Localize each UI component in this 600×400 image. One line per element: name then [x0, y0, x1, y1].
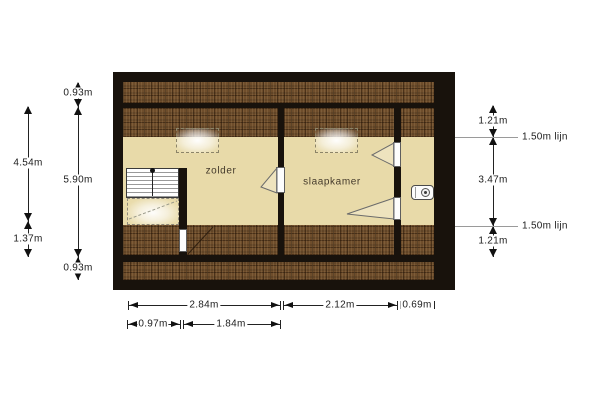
dim-arrow	[24, 213, 32, 221]
dim-arrow	[74, 249, 82, 257]
dim-tick	[128, 301, 129, 310]
door-swing-right-top	[372, 143, 394, 166]
dim-tick	[280, 301, 281, 310]
room-label-zolder: zolder	[206, 166, 237, 177]
plan-linework	[0, 0, 600, 400]
dim-value: 1.21m	[476, 116, 509, 127]
dim-value: 5.90m	[61, 175, 94, 186]
dim-value: 2.12m	[323, 300, 356, 311]
height-line-top	[455, 137, 518, 138]
dim-arrow	[74, 99, 82, 107]
dim-value: 1.37m	[11, 234, 44, 245]
dim-arrow	[185, 321, 193, 327]
door-swing-zolder	[261, 168, 277, 193]
dim-tick	[127, 320, 128, 329]
dim-arrow	[489, 137, 497, 145]
dim-arrow	[74, 107, 82, 115]
dim-arrow	[489, 105, 497, 113]
dim-arrow	[171, 321, 179, 327]
dim-arrow	[24, 221, 32, 229]
floorplan-canvas: zolder slaapkamer 0.93m 5.90m 0.93m 4.54…	[0, 0, 600, 400]
roof-fold-line	[188, 227, 213, 254]
dim-arrow	[24, 106, 32, 114]
dim-arrow	[489, 218, 497, 226]
dim-tick	[183, 320, 184, 329]
door-swing-right-bottom	[347, 198, 394, 219]
dim-arrow	[285, 302, 293, 308]
dim-value: 1.21m	[476, 236, 509, 247]
dim-arrow	[271, 321, 279, 327]
dim-arrow	[489, 226, 497, 234]
dim-value: 3.47m	[476, 175, 509, 186]
dim-tick	[180, 320, 181, 329]
dim-value: 0.93m	[61, 88, 94, 99]
height-line-label: 1.50m lijn	[522, 132, 568, 143]
room-label-slaapkamer: slaapkamer	[303, 177, 361, 188]
dim-arrow	[129, 321, 137, 327]
height-line-bottom	[455, 226, 518, 227]
dim-arrow	[271, 302, 279, 308]
dim-value: 0.97m	[137, 319, 168, 330]
dim-tick	[397, 301, 398, 310]
dim-value: 0.93m	[61, 263, 94, 274]
dim-arrow	[130, 302, 138, 308]
dim-arrow	[489, 249, 497, 257]
dim-tick	[280, 320, 281, 329]
dim-value: 0.69m	[400, 300, 433, 311]
dim-arrow	[24, 249, 32, 257]
dim-value: 1.84m	[214, 319, 247, 330]
height-line-label: 1.50m lijn	[522, 221, 568, 232]
dim-value: 2.84m	[187, 300, 220, 311]
dim-arrow	[489, 129, 497, 137]
stair-headroom-line	[129, 201, 177, 219]
dim-tick	[434, 301, 435, 309]
dim-tick	[283, 301, 284, 310]
dim-value: 4.54m	[11, 158, 44, 169]
dim-arrow	[388, 302, 396, 308]
